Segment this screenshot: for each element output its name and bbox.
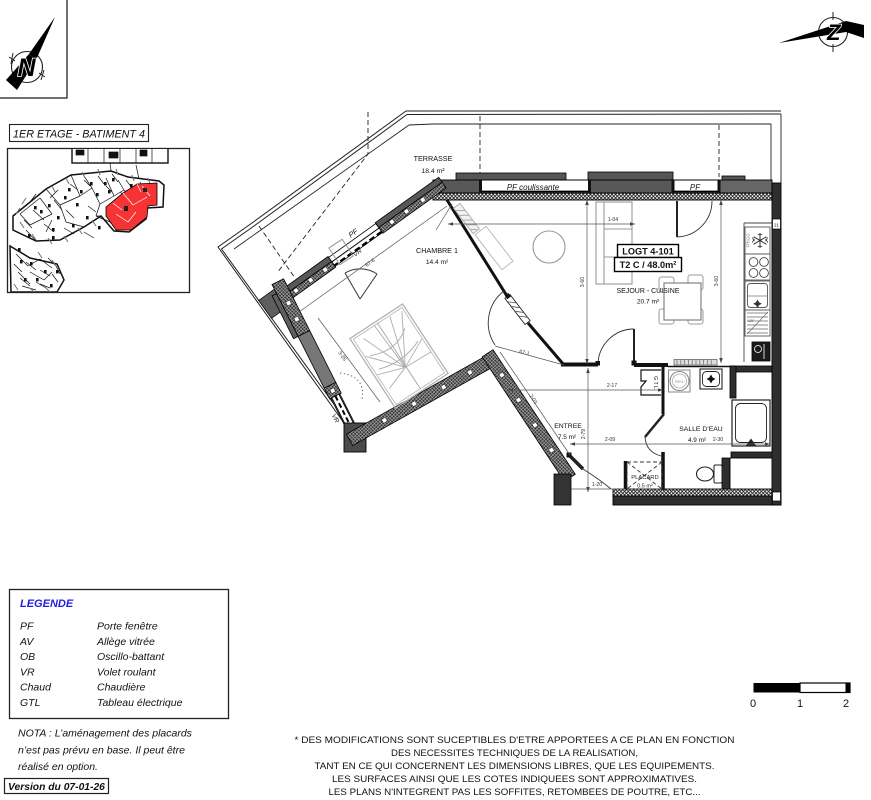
svg-text:réalisé en option.: réalisé en option.: [18, 761, 98, 773]
svg-text:PLACARD: PLACARD: [631, 475, 658, 481]
svg-text:3-60: 3-60: [580, 277, 586, 287]
svg-text:T2 C / 48.0m²: T2 C / 48.0m²: [620, 260, 677, 270]
svg-text:LOGT 4-101: LOGT 4-101: [622, 247, 674, 257]
svg-text:Chaudière: Chaudière: [97, 682, 146, 694]
svg-text:18.4 m²: 18.4 m²: [421, 168, 445, 175]
svg-text:1ER ETAGE - BATIMENT 4: 1ER ETAGE - BATIMENT 4: [13, 129, 145, 141]
svg-text:1-20: 1-20: [592, 482, 602, 488]
svg-text:14.4 m²: 14.4 m²: [426, 259, 449, 266]
svg-text:ENTREE: ENTREE: [554, 423, 582, 430]
svg-text:G T L: G T L: [652, 376, 658, 389]
svg-text:7.5 m²: 7.5 m²: [558, 434, 576, 441]
svg-text:2-17: 2-17: [607, 383, 617, 389]
svg-text:CHAMBRE 1: CHAMBRE 1: [416, 246, 458, 255]
svg-text:Chaud: Chaud: [20, 682, 52, 694]
svg-text:2-30: 2-30: [713, 437, 723, 443]
svg-text:1: 1: [797, 698, 803, 710]
svg-text:n’est pas prévu en base. Il pe: n’est pas prévu en base. Il peut être: [18, 744, 185, 756]
svg-text:3-60: 3-60: [714, 276, 720, 286]
svg-text:N: N: [18, 54, 37, 82]
svg-text:0.5 m²: 0.5 m²: [637, 484, 653, 490]
svg-text:20.7 m²: 20.7 m²: [637, 299, 660, 306]
svg-text:PF coulissante: PF coulissante: [507, 183, 560, 192]
svg-text:SEJOUR - CUISINE: SEJOUR - CUISINE: [616, 288, 679, 295]
svg-text:Volet roulant: Volet roulant: [97, 666, 157, 678]
svg-text:Allège vitrée: Allège vitrée: [96, 636, 155, 648]
svg-text:2: 2: [843, 698, 849, 710]
svg-text:Z: Z: [826, 20, 842, 45]
svg-text:2-79: 2-79: [581, 429, 587, 439]
svg-text:MAL: MAL: [675, 379, 685, 384]
svg-text:SALLE D’EAU: SALLE D’EAU: [679, 426, 723, 433]
svg-text:LEGENDE: LEGENDE: [20, 598, 74, 610]
svg-text:TERRASSE: TERRASSE: [414, 154, 453, 163]
svg-text:4.9 m²: 4.9 m²: [688, 437, 706, 444]
svg-text:LES PLANS N'INTEGRENT PAS LES: LES PLANS N'INTEGRENT PAS LES SOFFITES, …: [329, 787, 701, 798]
svg-text:Version du 07-01-26: Version du 07-01-26: [8, 782, 105, 793]
svg-text:PF: PF: [690, 183, 701, 192]
svg-text:1-04: 1-04: [608, 217, 618, 223]
svg-text:2-09: 2-09: [605, 437, 615, 443]
svg-text:TANT EN CE QUI CONCERNENT LES: TANT EN CE QUI CONCERNENT LES DIMENSIONS…: [315, 761, 715, 772]
svg-text:Oscillo-battant: Oscillo-battant: [97, 651, 165, 663]
svg-text:0: 0: [750, 698, 756, 710]
svg-text:AV: AV: [19, 636, 34, 648]
svg-text:PF: PF: [20, 621, 34, 633]
svg-text:GTL: GTL: [20, 697, 41, 709]
svg-text:VR: VR: [20, 666, 35, 678]
svg-text:21: 21: [774, 223, 780, 228]
svg-text:NOTA : L’aménagement des placa: NOTA : L’aménagement des placards: [18, 728, 193, 740]
svg-text:FRIGO: FRIGO: [746, 233, 751, 247]
svg-text:DES NECESSITES TECHNIQUES DE L: DES NECESSITES TECHNIQUES DE LA REALISAT…: [391, 748, 638, 759]
svg-text:* DES MODIFICATIONS SONT SUCEP: * DES MODIFICATIONS SONT SUCEPTIBLES D'E…: [295, 735, 735, 746]
svg-text:OB: OB: [20, 651, 35, 663]
svg-text:LES SURFACES AINSI QUE LES COT: LES SURFACES AINSI QUE LES COTES INDIQUE…: [332, 774, 697, 785]
svg-text:Tableau électrique: Tableau électrique: [97, 697, 183, 709]
svg-text:Porte fenêtre: Porte fenêtre: [97, 621, 158, 633]
